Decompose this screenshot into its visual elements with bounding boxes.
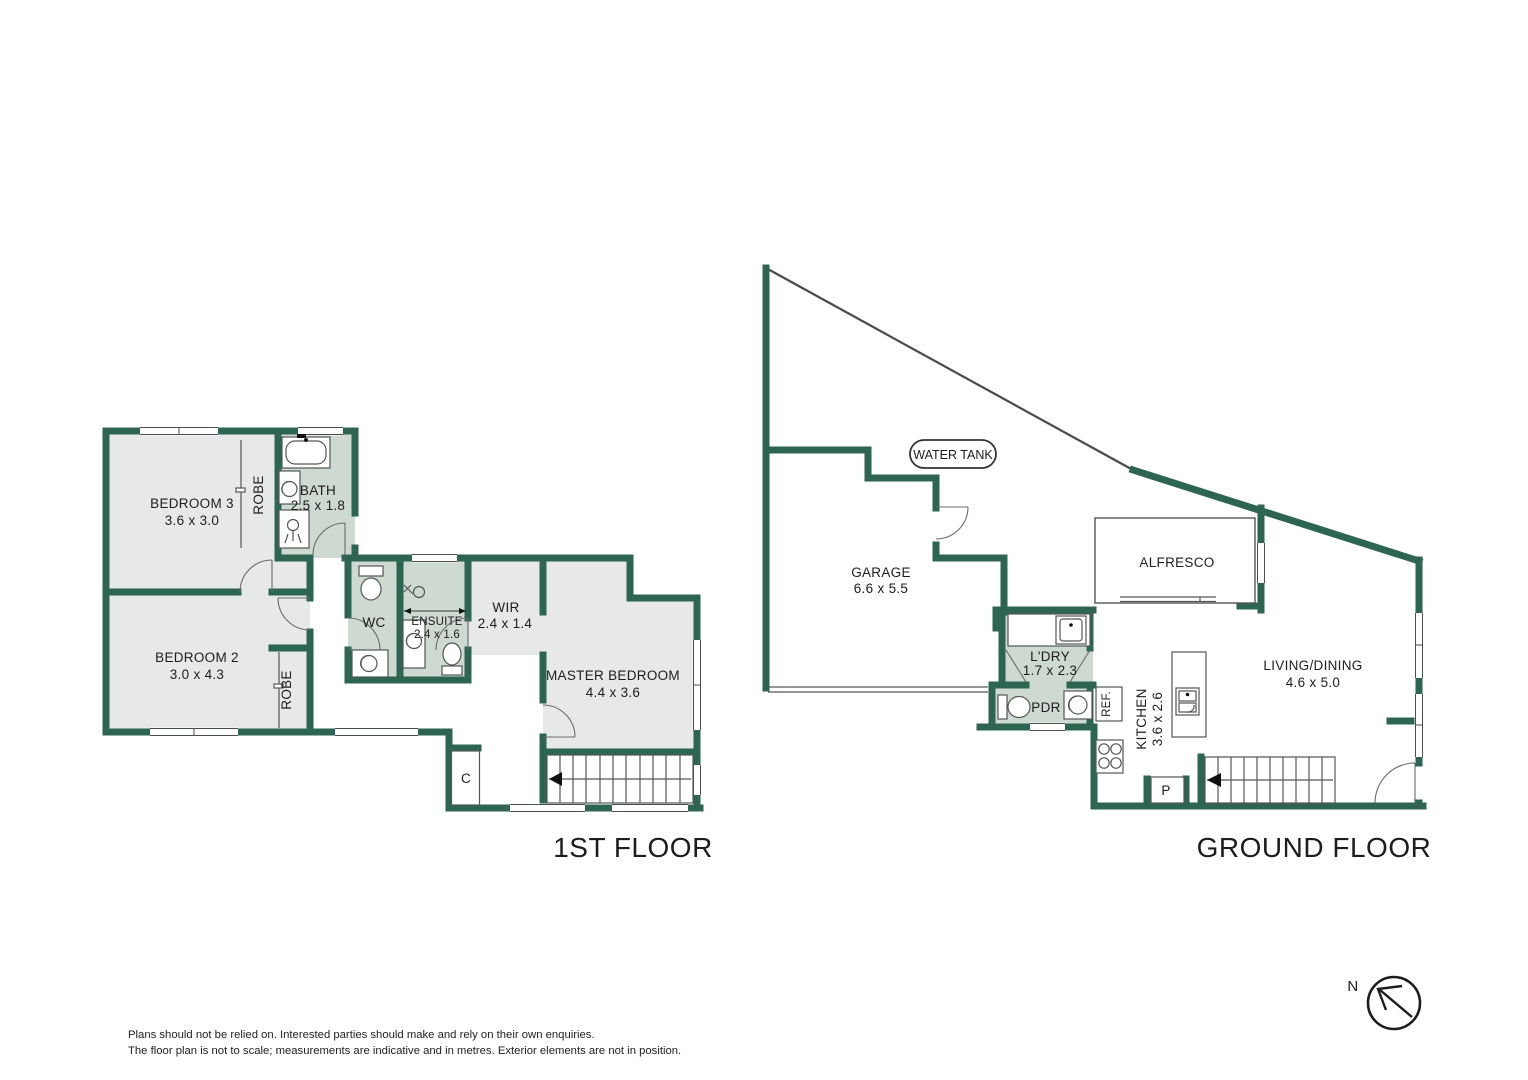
- living-dining-label: LIVING/DINING: [1263, 658, 1362, 673]
- master-bedroom-fill: [543, 558, 697, 752]
- bath-dims: 2.5 x 1.8: [291, 498, 346, 513]
- north-arrow-icon: N: [1347, 977, 1420, 1029]
- laundry-dims: 1.7 x 2.3: [1023, 663, 1078, 678]
- first-floor-plan: BEDROOM 3 3.6 x 3.0 ROBE BATH 2.5 x 1.8 …: [106, 427, 713, 864]
- disclaimer-line-1: Plans should not be relied on. Intereste…: [128, 1029, 595, 1041]
- bedroom-2-dims: 3.0 x 4.3: [170, 667, 225, 682]
- bedroom-3-label: BEDROOM 3: [150, 496, 234, 511]
- kitchen-label: KITCHEN: [1134, 688, 1149, 749]
- staircase: [547, 755, 693, 803]
- garage-label: GARAGE: [851, 565, 911, 580]
- first-floor-title: 1ST FLOOR: [553, 832, 713, 863]
- wc-label: WC: [362, 615, 385, 630]
- pantry-label: P: [1161, 783, 1170, 798]
- ensuite-label: ENSUITE: [411, 616, 462, 628]
- disclaimer: Plans should not be relied on. Intereste…: [128, 1029, 681, 1057]
- wir-label: WIR: [492, 600, 519, 615]
- bedroom-3-dims: 3.6 x 3.0: [165, 513, 220, 528]
- staircase: [1205, 757, 1335, 803]
- pdr-basin-icon: [1064, 691, 1092, 719]
- ground-floor-plan: WATER TANK GARAGE 6.6 x 5.5 ALFRESCO L'D…: [766, 268, 1431, 863]
- cooktop-icon: [1096, 740, 1123, 773]
- fridge-label: REF.: [1101, 691, 1113, 717]
- toilet-icon: [442, 643, 462, 675]
- water-tank-label: WATER TANK: [913, 448, 993, 462]
- robe-label: ROBE: [279, 670, 294, 709]
- garage-dims: 6.6 x 5.5: [854, 581, 909, 596]
- laundry-label: L'DRY: [1030, 649, 1070, 664]
- north-label: N: [1347, 978, 1358, 995]
- master-bedroom-label: MASTER BEDROOM: [546, 668, 680, 683]
- living-dining-dims: 4.6 x 5.0: [1286, 675, 1341, 690]
- robe-label: ROBE: [251, 475, 266, 514]
- closet-label: C: [461, 771, 471, 786]
- island-bench: [1172, 652, 1206, 737]
- ground-floor-title: GROUND FLOOR: [1197, 832, 1432, 863]
- pdr-label: PDR: [1031, 700, 1060, 715]
- shower-icon: [279, 510, 309, 548]
- master-bedroom-dims: 4.4 x 3.6: [586, 685, 641, 700]
- floorplan-image: BEDROOM 3 3.6 x 3.0 ROBE BATH 2.5 x 1.8 …: [0, 0, 1528, 1080]
- laundry-sink-icon: [1008, 614, 1090, 646]
- wc-basin-icon: [352, 650, 388, 677]
- bathtub-icon: [282, 434, 330, 468]
- kitchen-dims: 3.6 x 2.6: [1150, 692, 1165, 747]
- bath-label: BATH: [300, 483, 336, 498]
- bedroom-2-label: BEDROOM 2: [155, 650, 239, 665]
- disclaimer-line-2: The floor plan is not to scale; measurem…: [128, 1045, 681, 1057]
- wir-dims: 2.4 x 1.4: [478, 616, 533, 631]
- ensuite-dims: 2.4 x 1.6: [414, 629, 460, 641]
- alfresco-label: ALFRESCO: [1139, 555, 1214, 570]
- toilet-icon: [359, 566, 383, 600]
- garage-door-line: [768, 687, 988, 692]
- ground-floor-fixtures: [910, 440, 1335, 803]
- toilet-icon: [998, 695, 1030, 719]
